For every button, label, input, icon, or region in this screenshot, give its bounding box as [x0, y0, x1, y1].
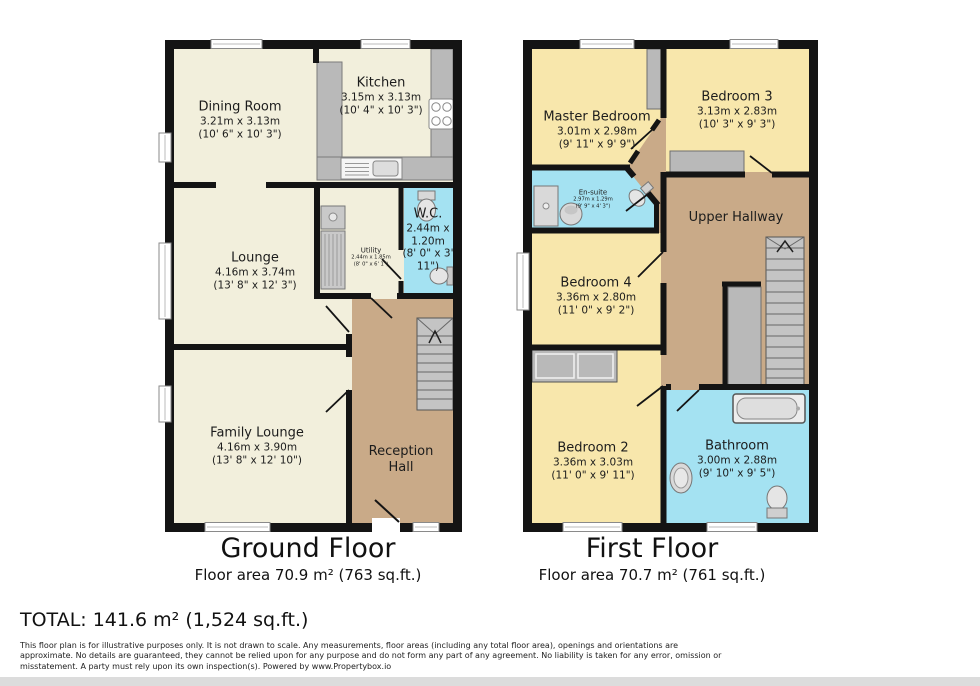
room-name: Reception Hall [358, 444, 444, 476]
room-imperial: (13' 8" x 12' 3") [213, 279, 296, 292]
staircase-ground [417, 318, 453, 410]
room-metric: 3.00m x 2.88m [697, 454, 777, 467]
bathroom-toilet-icon [767, 486, 787, 518]
disclaimer-line: misstatement. A party must rely upon its… [20, 662, 721, 672]
bath-icon [733, 394, 805, 423]
room-name: Utility [351, 247, 391, 255]
room-label-kitchen: Kitchen 3.15m x 3.13m (10' 4" x 10' 3") [339, 75, 422, 116]
room-name: Bedroom 3 [697, 89, 777, 105]
room-label-dining-room: Dining Room 3.21m x 3.13m (10' 6" x 10' … [198, 99, 281, 140]
room-label-bedroom2: Bedroom 2 3.36m x 3.03m (11' 0" x 9' 11"… [551, 440, 634, 481]
kitchen-sink-icon [341, 158, 402, 179]
floorplan-page: Dining Room 3.21m x 3.13m (10' 6" x 10' … [0, 0, 980, 686]
room-label-master-bedroom: Master Bedroom 3.01m x 2.98m (9' 11" x 9… [543, 109, 650, 150]
room-name: Bedroom 4 [556, 275, 636, 291]
chimney-breast [647, 49, 661, 109]
room-name: Family Lounge [210, 425, 304, 441]
room-label-lounge: Lounge 4.16m x 3.74m (13' 8" x 12' 3") [213, 250, 296, 291]
disclaimer-line: This floor plan is for illustrative purp… [20, 641, 721, 651]
ground-floor-title: Ground Floor [220, 533, 395, 564]
room-label-wc: W.C. 2.44m x 1.20m (8' 0" x 3' 11") [400, 206, 456, 273]
room-label-ensuite: En-suite 2.97m x 1.29m (9' 9" x 4' 3") [573, 189, 613, 210]
ground-floor-area: Floor area 70.9 m² (763 sq.ft.) [195, 566, 422, 584]
room-label-bathroom: Bathroom 3.00m x 2.88m (9' 10" x 9' 5") [697, 438, 777, 479]
room-label-bedroom3: Bedroom 3 3.13m x 2.83m (10' 3" x 9' 3") [697, 89, 777, 130]
staircase-first [766, 237, 804, 385]
room-imperial: (11' 0" x 9' 11") [551, 469, 634, 482]
room-imperial: (9' 10" x 9' 5") [697, 467, 777, 480]
hob-icon [429, 99, 453, 129]
total-area-label: TOTAL: 141.6 m² (1,524 sq.ft.) [20, 609, 308, 631]
room-metric: 3.13m x 2.83m [697, 105, 777, 118]
room-imperial: (10' 3" x 9' 3") [697, 118, 777, 131]
room-metric: 3.01m x 2.98m [543, 125, 650, 138]
disclaimer-text: This floor plan is for illustrative purp… [20, 641, 721, 672]
room-label-upper-hallway: Upper Hallway [689, 210, 784, 226]
room-name: Bedroom 2 [551, 440, 634, 456]
floorplan-graphic [0, 0, 980, 686]
hall-cupboard [728, 287, 761, 385]
bedroom3-closet [670, 151, 744, 172]
ensuite-shower-icon [534, 186, 558, 226]
room-imperial: (11' 0" x 9' 2") [556, 304, 636, 317]
room-label-reception-hall: Reception Hall [358, 444, 444, 476]
room-imperial: (10' 4" x 10' 3") [339, 104, 422, 117]
first-floor-title: First Floor [586, 533, 719, 564]
room-imperial: (13' 8" x 12' 10") [210, 454, 304, 467]
room-imperial: (9' 9" x 4' 3") [573, 203, 613, 209]
room-metric: 3.21m x 3.13m [198, 115, 281, 128]
room-metric: 2.97m x 1.29m [573, 197, 613, 203]
bathroom-sink-icon [670, 463, 692, 493]
utility-appliances [321, 206, 345, 289]
room-metric: 2.44m x 1.85m [351, 255, 391, 261]
room-name: Kitchen [339, 75, 422, 91]
room-name: Lounge [213, 250, 296, 266]
room-metric: 3.36m x 2.80m [556, 291, 636, 304]
room-metric: 3.36m x 3.03m [551, 456, 634, 469]
room-name: Master Bedroom [543, 109, 650, 125]
bedroom2-wardrobe [532, 350, 617, 382]
room-metric: 4.16m x 3.90m [210, 441, 304, 454]
room-imperial: (10' 6" x 10' 3") [198, 128, 281, 141]
room-name: Dining Room [198, 99, 281, 115]
room-name: En-suite [573, 189, 613, 197]
room-imperial: (9' 11" x 9' 9") [543, 138, 650, 151]
room-metric: 3.15m x 3.13m [339, 91, 422, 104]
room-label-utility: Utility 2.44m x 1.85m (8' 0" x 6' 1") [351, 247, 391, 268]
room-imperial: (8' 0" x 6' 1") [351, 261, 391, 267]
room-name: Upper Hallway [689, 210, 784, 226]
room-metric: 2.44m x 1.20m [400, 222, 456, 248]
disclaimer-line: approximate. No details are guaranteed, … [20, 651, 721, 661]
room-imperial: (8' 0" x 3' 11") [400, 248, 456, 274]
room-label-bedroom4: Bedroom 4 3.36m x 2.80m (11' 0" x 9' 2") [556, 275, 636, 316]
room-metric: 4.16m x 3.74m [213, 266, 296, 279]
room-name: Bathroom [697, 438, 777, 454]
room-label-family-lounge: Family Lounge 4.16m x 3.90m (13' 8" x 12… [210, 425, 304, 466]
bottom-bar [0, 677, 980, 686]
room-name: W.C. [400, 206, 456, 222]
first-floor-area: Floor area 70.7 m² (761 sq.ft.) [539, 566, 766, 584]
